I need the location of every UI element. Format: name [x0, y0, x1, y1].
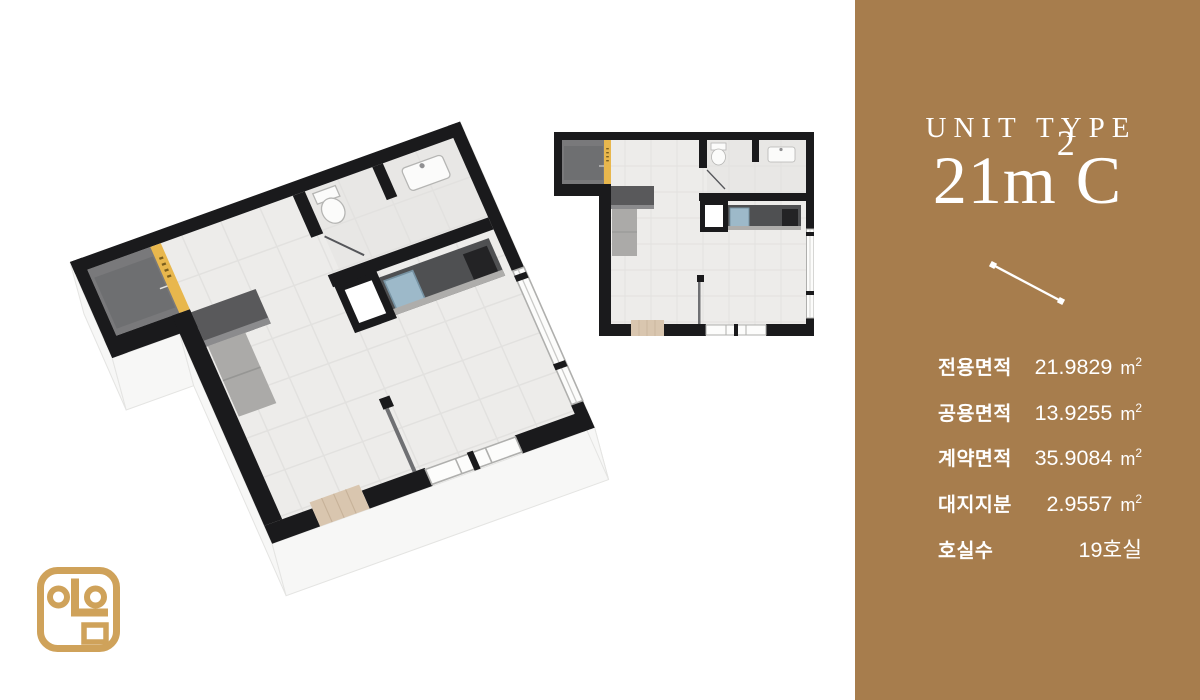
- spec-row: 공용면적 13.9255m2: [938, 397, 1142, 443]
- floorplan-2d: [554, 132, 814, 336]
- spec-value: 21.9829m2: [1035, 355, 1142, 380]
- spec-value: 35.9084m2: [1035, 446, 1142, 471]
- spec-value: 2.9557m2: [1047, 492, 1142, 517]
- unit-code-sup: 2: [1057, 123, 1076, 163]
- spec-label: 대지지분: [938, 488, 1012, 517]
- spec-label: 공용면적: [938, 397, 1012, 426]
- spec-label: 호실수: [938, 534, 993, 563]
- spec-label: 전용면적: [938, 351, 1012, 380]
- spec-label: 계약면적: [938, 442, 1012, 471]
- floorplan-3d-isometric: [0, 0, 860, 700]
- diagonal-arrow-icon: [985, 256, 1070, 310]
- unit-code-prefix: 21m: [933, 142, 1057, 218]
- spec-row: 대지지분 2.9557m2: [938, 488, 1142, 534]
- spec-table: 전용면적 21.9829m2 공용면적 13.9255m2 계약면적 35.90…: [938, 351, 1142, 579]
- spec-row: 계약면적 35.9084m2: [938, 442, 1142, 488]
- spec-value: 19호실: [1079, 533, 1142, 564]
- spec-value: 13.9255m2: [1035, 401, 1142, 426]
- unit-code: 21m2C: [855, 138, 1200, 222]
- ieum-logo: [36, 566, 121, 653]
- spec-row: 전용면적 21.9829m2: [938, 351, 1142, 397]
- unit-info-panel: UNIT TYPE 21m2C 전용면적 21.9829m2 공용면적 13.9…: [855, 0, 1200, 700]
- page: UNIT TYPE 21m2C 전용면적 21.9829m2 공용면적 13.9…: [0, 0, 1200, 700]
- unit-code-suffix: C: [1076, 142, 1122, 218]
- spec-row: 호실수 19호실: [938, 533, 1142, 579]
